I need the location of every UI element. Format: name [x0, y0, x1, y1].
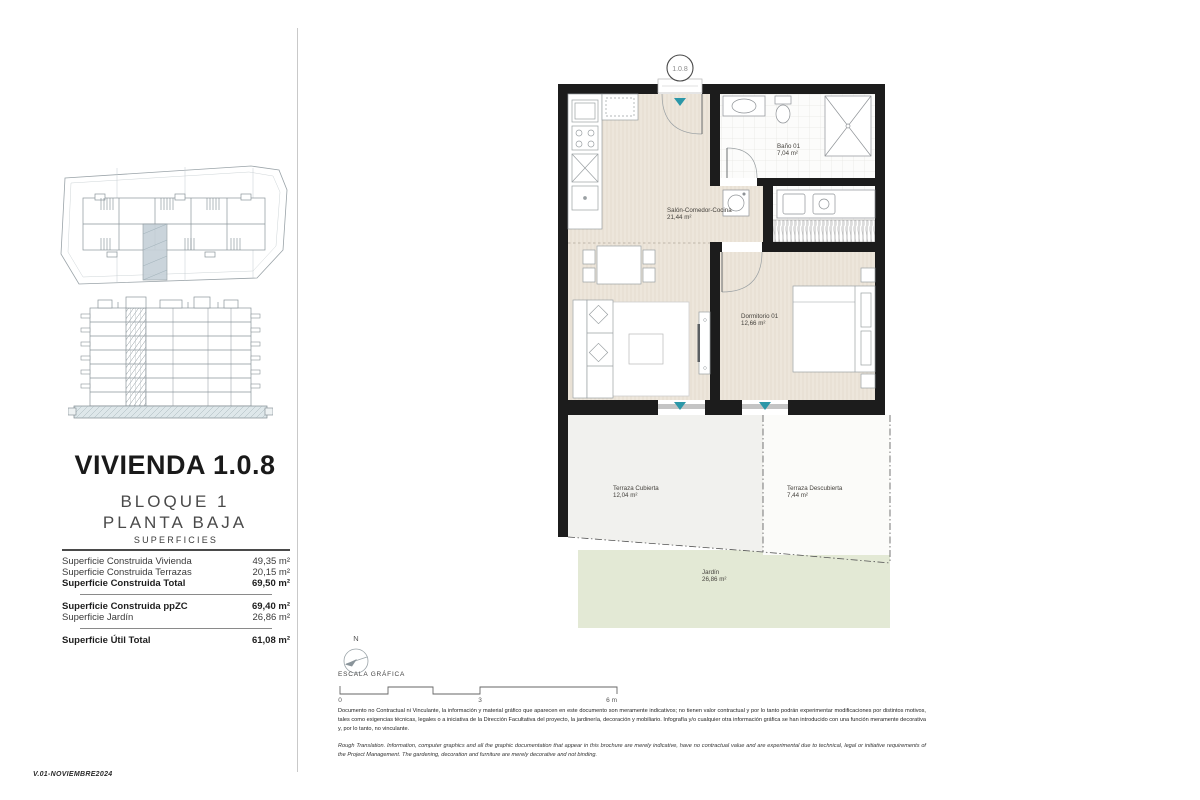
compass-needle — [345, 659, 357, 667]
unit-title: VIVIENDA 1.0.8 — [45, 450, 305, 481]
tv-screen — [698, 324, 701, 362]
table-row: Superficie Construida Total 69,50 m² — [62, 578, 290, 589]
room-area-terraza-descubierta: 7,44 m² — [787, 492, 808, 499]
scale-tick-3: 3 — [478, 697, 482, 704]
scale-bar-line — [340, 686, 617, 694]
row-value: 69,40 m² — [252, 601, 290, 612]
nightstand — [861, 374, 875, 388]
surfaces-heading: SUPERFICIES — [62, 535, 290, 545]
row-label: Superficie Útil Total — [62, 635, 151, 646]
stair-core — [126, 308, 146, 406]
bedroom-furniture — [793, 268, 875, 388]
wardrobe-hatch — [773, 220, 875, 242]
toilet-tank — [775, 96, 791, 104]
row-value: 49,35 m² — [253, 556, 291, 567]
scale-tick-0: 0 — [338, 697, 342, 704]
floor-subtitle: PLANTA BAJA — [45, 512, 305, 533]
row-label: Superficie Jardín — [62, 612, 133, 623]
room-area-bano: 7,04 m² — [777, 150, 798, 157]
surfaces-rule — [62, 549, 290, 551]
room-label-bano: Baño 01 — [777, 143, 801, 150]
nightstand — [861, 268, 875, 282]
keyplan-drawing — [55, 158, 295, 303]
room-label-dormitorio: Dormitorio 01 — [741, 313, 779, 320]
block-subtitle: BLOQUE 1 — [45, 491, 305, 512]
scale-tick-6: 6 m — [606, 697, 617, 704]
table-group-divider — [80, 594, 272, 595]
elevation-drawing — [68, 288, 273, 433]
building-footprint — [83, 194, 265, 257]
row-label: Superficie Construida Terrazas — [62, 567, 192, 578]
table-row: Superficie Jardín 26,86 m² — [62, 612, 290, 623]
table-row: Superficie Construida ppZC 69,40 m² — [62, 601, 290, 612]
table-row: Superficie Construida Vivienda 49,35 m² — [62, 556, 290, 567]
scale-bar: 0 3 6 m — [338, 682, 623, 704]
utility-fixtures — [723, 190, 875, 218]
pillow — [861, 331, 871, 365]
row-value: 26,86 m² — [253, 612, 291, 623]
roof-elements — [98, 297, 238, 308]
toilet — [776, 105, 790, 123]
coffee-table — [629, 334, 663, 364]
room-area-terraza-cubierta: 12,04 m² — [613, 492, 637, 499]
row-label: Superficie Construida Total — [62, 578, 185, 589]
terrace-covered-area — [568, 415, 763, 552]
scale-label: ESCALA GRÁFICA — [338, 671, 405, 678]
room-area-jardin: 26,86 m² — [702, 576, 726, 583]
north-label: N — [353, 634, 358, 643]
room-area-salon: 21,44 m² — [667, 214, 691, 221]
section-structure — [90, 308, 251, 406]
room-label-terraza-descubierta: Terraza Descubierta — [787, 485, 843, 492]
brochure-page: { "document": { "version": "V.01-NOVIEMB… — [0, 0, 1200, 800]
row-value: 20,15 m² — [253, 567, 291, 578]
ground-floor-hatch — [74, 406, 267, 418]
unit-badge: 1.0.8 — [667, 55, 693, 81]
table-row: Superficie Construida Terrazas 20,15 m² — [62, 567, 290, 578]
unit-title-block: VIVIENDA 1.0.8 BLOQUE 1 PLANTA BAJA — [45, 450, 305, 533]
cooktop — [572, 126, 598, 150]
row-label: Superficie Construida Vivienda — [62, 556, 192, 567]
room-label-jardin: Jardín — [702, 569, 720, 576]
washbasin — [732, 99, 756, 113]
row-value: 69,50 m² — [252, 578, 290, 589]
sidebar-divider-line — [297, 28, 298, 772]
disclaimer-english: Rough Translation. Information, computer… — [338, 742, 926, 760]
dining-table — [597, 246, 641, 284]
row-value: 61,08 m² — [252, 635, 290, 646]
pillow — [861, 293, 871, 327]
room-area-dormitorio: 12,66 m² — [741, 320, 765, 327]
room-label-terraza-cubierta: Terraza Cubierta — [613, 485, 659, 492]
table-group-divider — [80, 628, 272, 629]
disclaimer-spanish: Documento no Contractual ni Vinculante, … — [338, 707, 926, 734]
unit-badge-label: 1.0.8 — [672, 66, 688, 73]
room-label-salon: Salón-Comedor-Cocina — [667, 207, 732, 214]
table-row: Superficie Útil Total 61,08 m² — [62, 635, 290, 646]
version-stamp: V.01-NOVIEMBRE2024 — [33, 771, 112, 778]
balcony-ticks — [81, 314, 260, 388]
sofa — [573, 300, 613, 398]
floorplan-drawing: 1.0.8 — [545, 50, 905, 630]
surfaces-table: Superficie Construida Vivienda 49,35 m² … — [62, 556, 290, 646]
garden-area — [578, 550, 890, 628]
row-label: Superficie Construida ppZC — [62, 601, 188, 612]
